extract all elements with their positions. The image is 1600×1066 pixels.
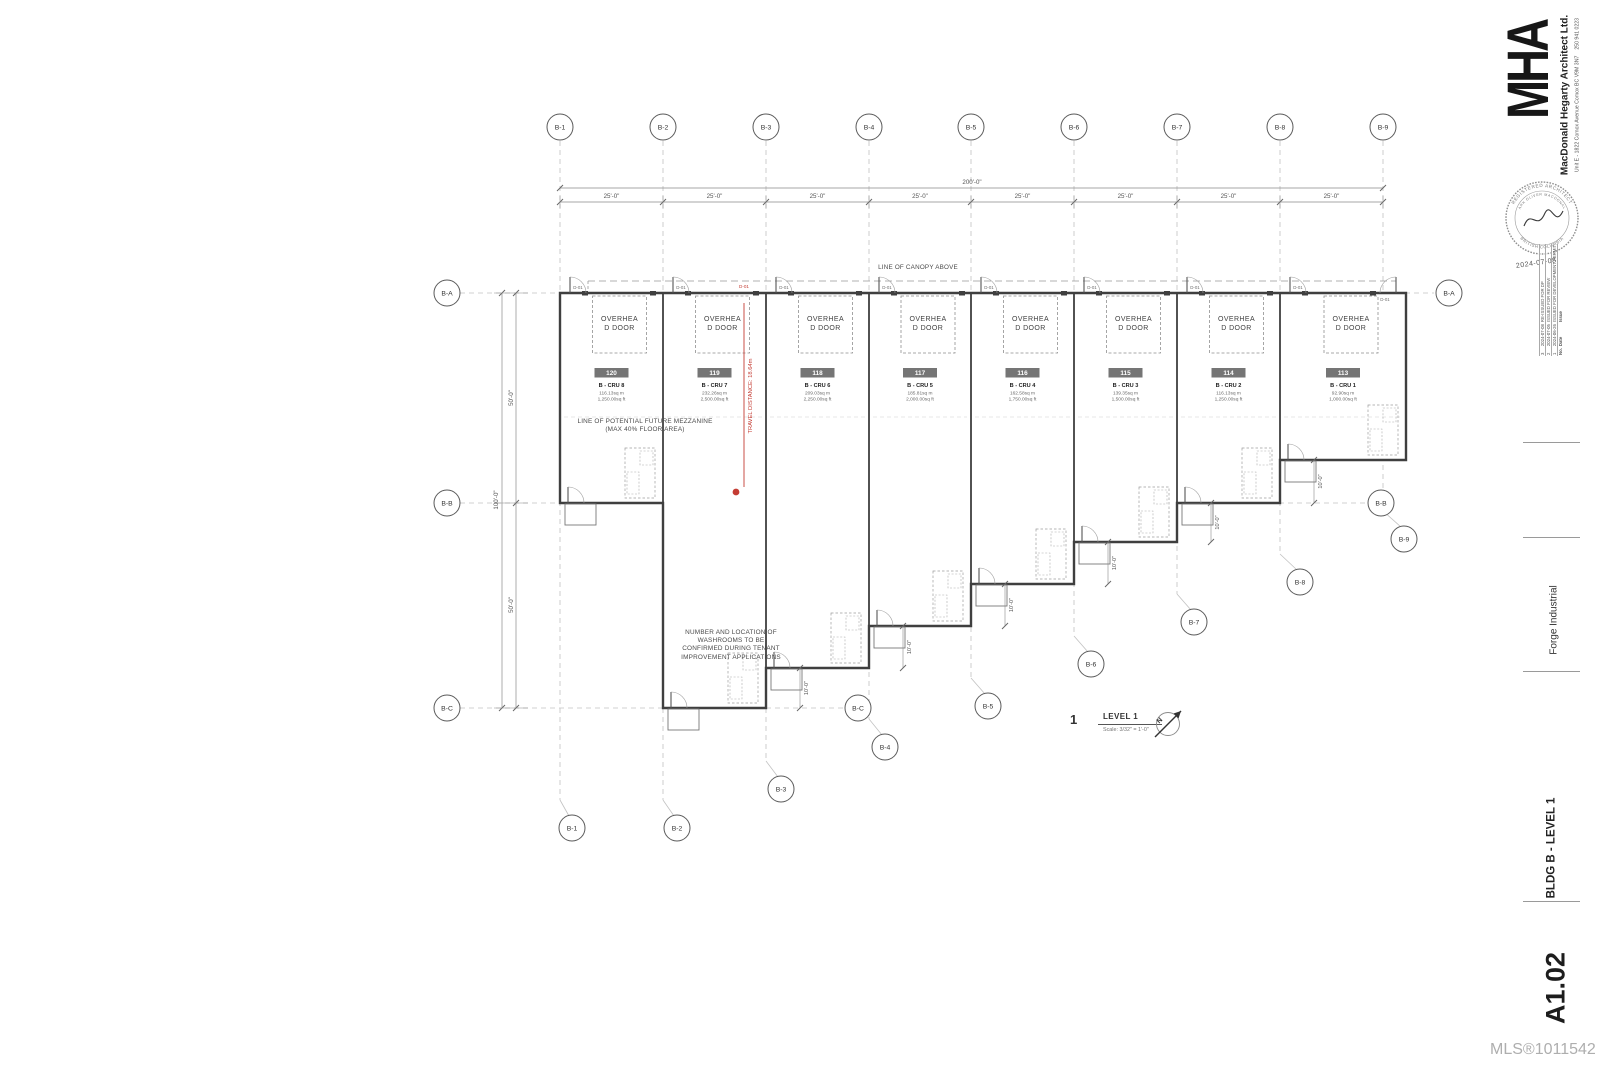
- storefront-mullion: [582, 291, 588, 296]
- svg-text:B-5: B-5: [966, 124, 977, 131]
- svg-text:25'-0": 25'-0": [707, 193, 723, 200]
- svg-text:B-8: B-8: [1295, 579, 1306, 586]
- titleblock-divider: [1523, 671, 1580, 672]
- rear-canopy-stub: [874, 627, 905, 648]
- svg-text:B - CRU 5: B - CRU 5: [907, 383, 933, 389]
- view-name: LEVEL 1: [1103, 712, 1138, 722]
- svg-text:D-01: D-01: [882, 285, 892, 290]
- dimensions-top: 200'-0"25'-0"25'-0"25'-0"25'-0"25'-0"25'…: [557, 179, 1386, 208]
- rear-canopy-stub: [1079, 543, 1110, 564]
- revision-row: 12024-06-26ISSUED FOR DEVELOPMENT PERMIT: [1552, 244, 1558, 356]
- svg-text:B - CRU 6: B - CRU 6: [805, 383, 831, 389]
- svg-text:TRAVEL DISTANCE: 18.64m: TRAVEL DISTANCE: 18.64m: [748, 358, 754, 433]
- svg-text:B-C: B-C: [441, 705, 453, 712]
- svg-text:209.03sq m: 209.03sq m: [805, 391, 830, 397]
- svg-text:25'-0": 25'-0": [1118, 193, 1134, 200]
- floor-plan-svg: B-1B-1B-2B-2B-3B-3B-4B-4B-5B-5B-6B-6B-7B…: [0, 0, 1600, 1066]
- rear-canopy-stub: [976, 585, 1007, 606]
- svg-text:D-01: D-01: [984, 285, 994, 290]
- door-swing: [1380, 277, 1396, 293]
- firm-address: Unit E - 1822 Comox Avenue Comox BC V9M …: [1575, 18, 1582, 172]
- svg-text:B-2: B-2: [658, 124, 669, 131]
- svg-text:50'-0": 50'-0": [508, 597, 515, 613]
- svg-text:B-3: B-3: [776, 786, 787, 793]
- svg-text:B-B: B-B: [441, 500, 453, 507]
- svg-text:B-6: B-6: [1069, 124, 1080, 131]
- svg-text:B-3: B-3: [761, 124, 772, 131]
- svg-text:D-01: D-01: [779, 285, 789, 290]
- svg-text:D-01: D-01: [676, 285, 686, 290]
- dimensions-left: 100'-0"50'-0"50'-0": [493, 290, 528, 711]
- note-mezzanine: LINE OF POTENTIAL FUTURE MEZZANINE (MAX …: [575, 418, 715, 434]
- svg-text:D-01: D-01: [1087, 285, 1097, 290]
- svg-text:10'-0": 10'-0": [1009, 598, 1015, 612]
- svg-text:B-1: B-1: [555, 124, 566, 131]
- storefront-mullion: [1267, 291, 1273, 296]
- svg-text:B-5: B-5: [983, 703, 994, 710]
- svg-text:25'-0": 25'-0": [912, 193, 928, 200]
- svg-text:1,750.00sq ft: 1,750.00sq ft: [1009, 397, 1037, 403]
- sheet-number: A1.02: [1539, 952, 1574, 1024]
- svg-text:25'-0": 25'-0": [810, 193, 826, 200]
- svg-text:118: 118: [812, 370, 823, 377]
- svg-text:1,500.00sq ft: 1,500.00sq ft: [1112, 397, 1140, 403]
- project-name: Forge Industrial: [1549, 585, 1562, 654]
- svg-text:B - CRU 7: B - CRU 7: [702, 383, 728, 389]
- svg-text:10'-0": 10'-0": [1215, 515, 1221, 529]
- mls-watermark: MLS®1011542: [1490, 1040, 1596, 1060]
- svg-text:D-01: D-01: [1380, 297, 1390, 302]
- svg-text:B-8: B-8: [1275, 124, 1286, 131]
- rear-canopy-stub: [668, 709, 699, 730]
- north-arrow: N: [1155, 711, 1181, 737]
- revision-table: 32024-07-08RE-ISSUED FOR DP22024-07-05IS…: [1539, 266, 1585, 356]
- storefront-mullion: [1302, 291, 1308, 296]
- titleblock-divider: [1523, 901, 1580, 902]
- svg-text:B-7: B-7: [1189, 619, 1200, 626]
- revision-header: No.DateIssue: [1558, 244, 1564, 356]
- svg-text:2,500.00sq ft: 2,500.00sq ft: [701, 397, 729, 403]
- svg-text:D-01: D-01: [739, 284, 749, 289]
- storefront-mullion: [993, 291, 999, 296]
- seal-signature: [1524, 210, 1563, 226]
- svg-text:162.58sq m: 162.58sq m: [1010, 391, 1035, 397]
- svg-text:25'-0": 25'-0": [1324, 193, 1340, 200]
- svg-text:10'-0": 10'-0": [804, 681, 810, 695]
- storefront-mullion: [1096, 291, 1102, 296]
- rear-canopy-stub: [771, 669, 802, 690]
- svg-text:D-01: D-01: [1293, 285, 1303, 290]
- rear-canopy-stub: [1182, 504, 1213, 525]
- svg-text:50'-0": 50'-0": [508, 390, 515, 406]
- svg-text:B - CRU 2: B - CRU 2: [1216, 383, 1242, 389]
- svg-text:120: 120: [606, 370, 617, 377]
- svg-text:139.35sq m: 139.35sq m: [1113, 391, 1138, 397]
- svg-text:92.90sq m: 92.90sq m: [1332, 391, 1354, 397]
- svg-text:N: N: [1156, 717, 1165, 726]
- svg-text:1,250.00sq ft: 1,250.00sq ft: [1215, 397, 1243, 403]
- firm-phone: 250 941 0223: [1575, 18, 1582, 50]
- svg-text:119: 119: [709, 370, 720, 377]
- svg-text:B-6: B-6: [1086, 661, 1097, 668]
- svg-text:1,000.00sq ft: 1,000.00sq ft: [1329, 397, 1357, 403]
- svg-text:D-01: D-01: [573, 285, 583, 290]
- svg-text:B-A: B-A: [441, 290, 453, 297]
- svg-text:B-B: B-B: [1375, 500, 1387, 507]
- rear-canopy-stub: [565, 504, 596, 525]
- view-scale: Scale: 3/32" = 1'-0": [1103, 727, 1149, 734]
- drawing-sheet: B-1B-1B-2B-2B-3B-3B-4B-4B-5B-5B-6B-6B-7B…: [0, 0, 1600, 1066]
- svg-text:114: 114: [1223, 370, 1234, 377]
- firm-address-line: Unit E - 1822 Comox Avenue Comox BC V9M …: [1575, 56, 1582, 172]
- svg-text:B-9: B-9: [1399, 536, 1410, 543]
- svg-text:B-9: B-9: [1378, 124, 1389, 131]
- svg-text:25'-0": 25'-0": [1015, 193, 1031, 200]
- svg-text:100'-0": 100'-0": [493, 490, 500, 509]
- storefront-mullion: [685, 291, 691, 296]
- svg-text:116.13sq m: 116.13sq m: [1216, 391, 1241, 397]
- titleblock-divider: [1523, 442, 1580, 443]
- svg-text:B-2: B-2: [672, 825, 683, 832]
- svg-text:B-4: B-4: [880, 744, 891, 751]
- svg-text:200'-0": 200'-0": [962, 179, 981, 186]
- svg-text:25'-0": 25'-0": [1221, 193, 1237, 200]
- svg-text:B-A: B-A: [1443, 290, 1455, 297]
- storefront-mullion: [788, 291, 794, 296]
- svg-text:185.81sq m: 185.81sq m: [907, 391, 932, 397]
- svg-text:10'-0": 10'-0": [1112, 556, 1118, 570]
- svg-text:116.13sq m: 116.13sq m: [599, 391, 624, 397]
- note-washrooms: NUMBER AND LOCATION OF WASHROOMS TO BE C…: [678, 629, 784, 662]
- firm-logo: MHA: [1490, 21, 1565, 119]
- storefront-mullion: [856, 291, 862, 296]
- svg-text:116: 116: [1017, 370, 1028, 377]
- svg-text:117: 117: [915, 370, 926, 377]
- svg-text:2,250.00sq ft: 2,250.00sq ft: [804, 397, 832, 403]
- storefront-mullion: [1370, 291, 1376, 296]
- storefront-mullion: [753, 291, 759, 296]
- titleblock-divider: [1523, 537, 1580, 538]
- storefront-mullion: [1164, 291, 1170, 296]
- storefront-mullion: [1061, 291, 1067, 296]
- svg-text:MARK OLIVER MACDONALD: MARK OLIVER MACDONALD: [0, 0, 1567, 210]
- note-canopy: LINE OF CANOPY ABOVE: [878, 264, 958, 272]
- svg-text:B-1: B-1: [567, 825, 578, 832]
- svg-text:B-C: B-C: [852, 705, 864, 712]
- svg-text:B-4: B-4: [864, 124, 875, 131]
- svg-text:B-7: B-7: [1172, 124, 1183, 131]
- most-remote-point-dot: [733, 489, 740, 496]
- rear-canopy-stub: [1285, 461, 1316, 482]
- view-number: 1: [1070, 712, 1077, 729]
- svg-text:D-01: D-01: [1190, 285, 1200, 290]
- storefront-mullion: [891, 291, 897, 296]
- svg-text:115: 115: [1120, 370, 1131, 377]
- architect-seal: REGISTERED ARCHITECTMARK OLIVER MACDONAL…: [0, 0, 1578, 254]
- svg-text:B - CRU 4: B - CRU 4: [1010, 383, 1037, 389]
- firm-name: MacDonald Hegarty Architect Ltd.: [1560, 15, 1573, 175]
- storefront-mullion: [1199, 291, 1205, 296]
- storefront-mullion: [959, 291, 965, 296]
- svg-text:10'-0": 10'-0": [907, 640, 913, 654]
- svg-text:B - CRU 8: B - CRU 8: [599, 383, 625, 389]
- svg-text:113: 113: [1338, 370, 1349, 377]
- svg-text:B - CRU 1: B - CRU 1: [1330, 383, 1356, 389]
- svg-text:10'-0": 10'-0": [1318, 474, 1324, 488]
- svg-text:232.26sq m: 232.26sq m: [702, 391, 727, 397]
- svg-text:25'-0": 25'-0": [604, 193, 620, 200]
- svg-text:B - CRU 3: B - CRU 3: [1113, 383, 1139, 389]
- svg-text:2,000.00sq ft: 2,000.00sq ft: [906, 397, 934, 403]
- sheet-title: BLDG B - LEVEL 1: [1545, 798, 1560, 899]
- svg-text:1,250.00sq ft: 1,250.00sq ft: [598, 397, 626, 403]
- storefront-mullion: [650, 291, 656, 296]
